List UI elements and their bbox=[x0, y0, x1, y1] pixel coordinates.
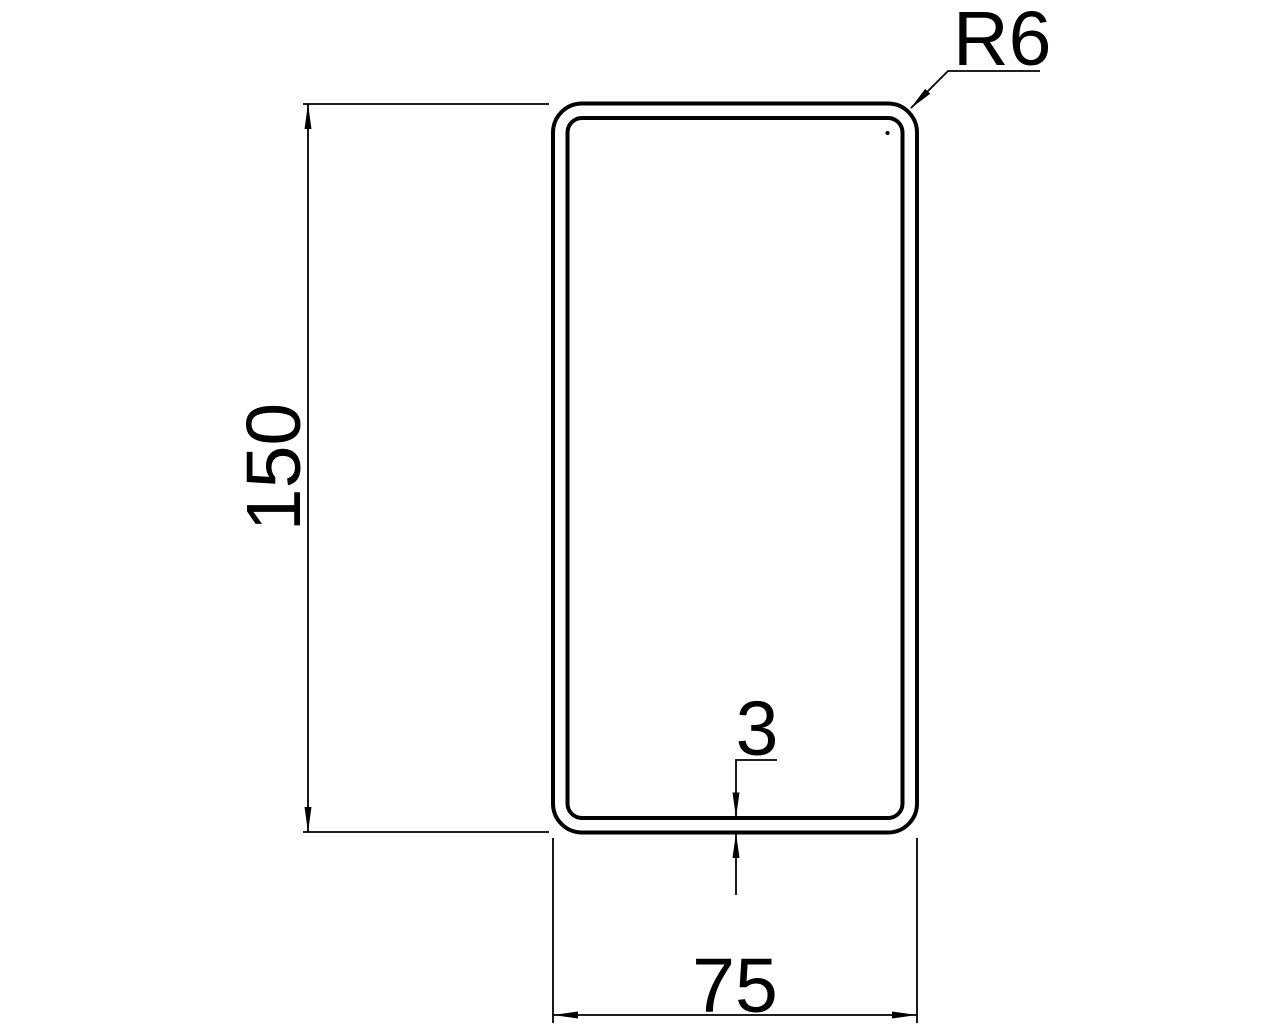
thickness-dimension-text: 3 bbox=[736, 686, 779, 772]
radius-center-mark bbox=[886, 131, 890, 135]
radius-callout: R6 bbox=[908, 0, 1052, 111]
technical-drawing-canvas: 150 75 3 R6 bbox=[0, 0, 1280, 1024]
height-arrow-bottom-icon bbox=[305, 807, 312, 832]
thickness-dimension: 3 bbox=[733, 686, 779, 895]
drawing-svg: 150 75 3 R6 bbox=[0, 0, 1280, 1024]
radius-callout-text: R6 bbox=[953, 0, 1051, 82]
width-dimension: 75 bbox=[553, 838, 917, 1024]
thickness-arrow-up-icon bbox=[733, 833, 740, 858]
width-dimension-text: 75 bbox=[692, 943, 778, 1024]
height-dimension: 150 bbox=[231, 104, 549, 832]
width-arrow-right-icon bbox=[892, 1012, 917, 1019]
radius-arrow-icon bbox=[908, 89, 931, 112]
height-dimension-text: 150 bbox=[231, 403, 317, 531]
width-arrow-left-icon bbox=[553, 1012, 578, 1019]
height-arrow-top-icon bbox=[305, 104, 312, 129]
thickness-arrow-down-icon bbox=[733, 793, 740, 818]
